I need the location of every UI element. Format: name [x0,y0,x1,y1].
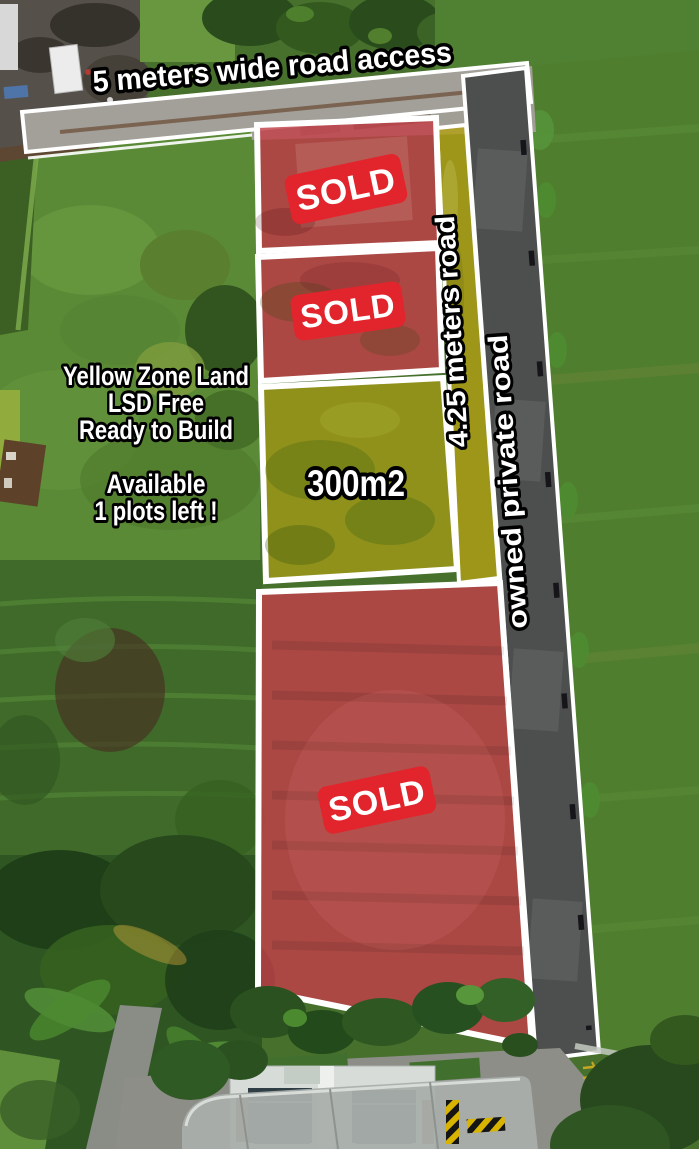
info-line-2: LSD Free [108,388,204,418]
aerial-overlay-canvas: 5 meters wide road access 4.25 meters ro… [0,0,699,1149]
plot-area-label: 300m2 [307,463,405,504]
info-line-3: Ready to Build [79,415,233,445]
info-line-5: Available [107,469,206,499]
hazard-barrier-vertical [446,1100,459,1144]
info-line-1: Yellow Zone Land [63,361,249,391]
hazard-barrier-horizontal [467,1117,506,1134]
aerial-land-listing-photo: 5 meters wide road access 4.25 meters ro… [0,0,699,1149]
info-line-6: 1 plots left ! [95,496,218,526]
